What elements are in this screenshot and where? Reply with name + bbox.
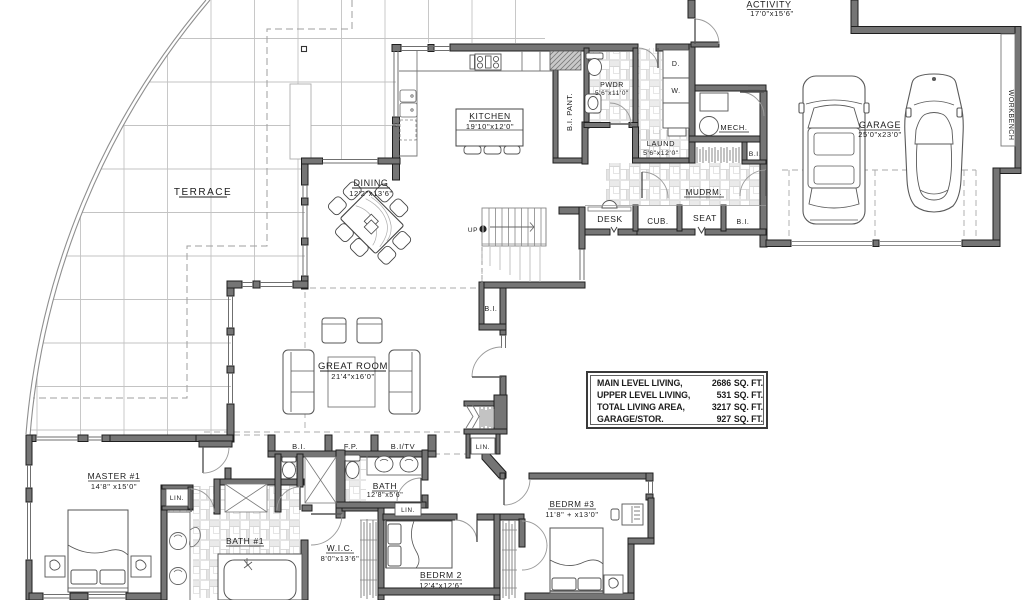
svg-text:17'0"x15'6": 17'0"x15'6": [750, 9, 794, 18]
svg-text:KITCHEN: KITCHEN: [469, 111, 511, 121]
svg-text:B.I. PANT.: B.I. PANT.: [565, 93, 574, 131]
svg-text:21'4"x16'0": 21'4"x16'0": [331, 372, 375, 381]
svg-text:W.: W.: [671, 88, 680, 95]
svg-text:MECH.: MECH.: [720, 123, 747, 132]
svg-text:PWDR: PWDR: [600, 82, 624, 89]
svg-text:2686: 2686: [712, 378, 731, 388]
svg-text:F.P.: F.P.: [344, 442, 358, 451]
svg-text:TERRACE: TERRACE: [174, 187, 232, 198]
svg-text:MASTER #1: MASTER #1: [88, 471, 141, 481]
svg-text:BEDRM 2: BEDRM 2: [420, 570, 462, 580]
svg-text:3217: 3217: [712, 402, 731, 412]
svg-text:SQ. FT.: SQ. FT.: [734, 402, 763, 412]
svg-text:LIN.: LIN.: [476, 444, 490, 451]
svg-text:BATH #1: BATH #1: [226, 536, 264, 546]
svg-text:D.: D.: [672, 61, 680, 68]
svg-text:B.I.: B.I.: [485, 306, 498, 313]
svg-text:BATH: BATH: [373, 481, 397, 491]
svg-text:WORKBENCH: WORKBENCH: [1007, 90, 1014, 141]
svg-text:LIN.: LIN.: [170, 495, 184, 502]
svg-text:LAUND: LAUND: [647, 139, 675, 148]
svg-text:CUB.: CUB.: [647, 217, 669, 226]
svg-text:MUDRM.: MUDRM.: [686, 188, 722, 197]
svg-text:SQ. FT.: SQ. FT.: [734, 378, 763, 388]
svg-text:GARAGE: GARAGE: [859, 120, 901, 130]
svg-text:B.I.: B.I.: [749, 151, 762, 158]
svg-text:B.I/TV: B.I/TV: [391, 442, 415, 451]
svg-text:11'8" + x13'0": 11'8" + x13'0": [545, 510, 598, 519]
svg-text:531: 531: [717, 390, 732, 400]
svg-text:12'4"x12'6": 12'4"x12'6": [419, 581, 463, 590]
svg-text:5'6"x12'0": 5'6"x12'0": [643, 150, 679, 157]
svg-text:GREAT ROOM: GREAT ROOM: [318, 361, 388, 372]
svg-text:MAIN LEVEL LIVING,: MAIN LEVEL LIVING,: [597, 378, 683, 388]
svg-text:B.I.: B.I.: [292, 442, 306, 451]
svg-text:DINING: DINING: [353, 178, 388, 188]
svg-text:19'10"x12'0": 19'10"x12'0": [466, 122, 514, 131]
svg-text:UPPER LEVEL LIVING,: UPPER LEVEL LIVING,: [597, 390, 690, 400]
svg-text:DESK: DESK: [597, 214, 623, 224]
svg-text:W.I.C.: W.I.C.: [327, 543, 354, 553]
svg-text:UP: UP: [468, 227, 478, 234]
svg-text:SQ. FT.: SQ. FT.: [734, 390, 763, 400]
svg-text:B.I.: B.I.: [737, 219, 750, 226]
svg-text:GARAGE/STOR.: GARAGE/STOR.: [597, 414, 664, 424]
svg-text:LIN.: LIN.: [401, 507, 415, 514]
svg-text:927: 927: [717, 414, 732, 424]
svg-text:25'0"x23'0": 25'0"x23'0": [858, 130, 902, 139]
svg-text:SEAT: SEAT: [693, 213, 717, 223]
svg-text:5'6"x11'0": 5'6"x11'0": [595, 90, 629, 97]
svg-text:BEDRM #3: BEDRM #3: [550, 500, 595, 509]
svg-text:12'8"x5'6": 12'8"x5'6": [367, 492, 404, 499]
svg-text:SQ. FT.: SQ. FT.: [734, 414, 763, 424]
svg-text:14'8" x15'0": 14'8" x15'0": [91, 482, 137, 491]
svg-text:TOTAL LIVING AREA,: TOTAL LIVING AREA,: [597, 402, 685, 412]
svg-text:8'0"x13'6": 8'0"x13'6": [321, 554, 360, 563]
svg-text:12'2"x13'6": 12'2"x13'6": [349, 189, 393, 198]
